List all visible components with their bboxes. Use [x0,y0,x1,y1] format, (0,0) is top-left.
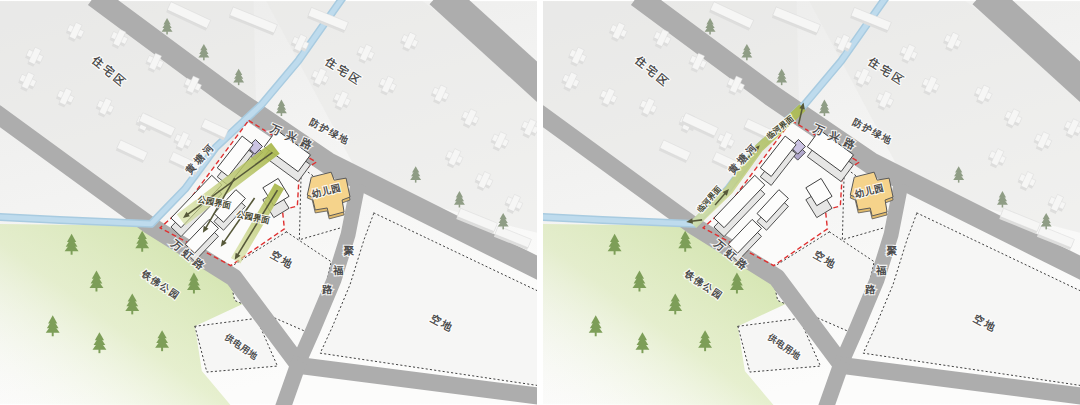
diagram-pair: 住宅区住宅区防护绿地万兴路黄塘河幼儿园聚福路空地空地万虹路铁佛公园供电用地公园界… [0,0,1080,405]
label-road-jufu: 福 [875,265,887,276]
label-road-jufu: 聚 [343,245,355,256]
site-plan-park-interface: 住宅区住宅区防护绿地万兴路黄塘河幼儿园聚福路空地空地万虹路铁佛公园供电用地公园界… [0,0,537,405]
site-plan-river-interface: 住宅区住宅区防护绿地万兴路黄塘河幼儿园聚福路空地空地万虹路铁佛公园供电用地临河界… [543,0,1080,405]
site-plan-svg-after: 住宅区住宅区防护绿地万兴路黄塘河幼儿园聚福路空地空地万虹路铁佛公园供电用地临河界… [543,0,1080,405]
site-plan-svg-before: 住宅区住宅区防护绿地万兴路黄塘河幼儿园聚福路空地空地万虹路铁佛公园供电用地公园界… [0,0,537,405]
label-road-jufu: 路 [321,284,333,295]
label-road-jufu: 路 [864,284,876,295]
label-road-jufu: 福 [332,265,344,276]
label-road-jufu: 聚 [886,245,898,256]
